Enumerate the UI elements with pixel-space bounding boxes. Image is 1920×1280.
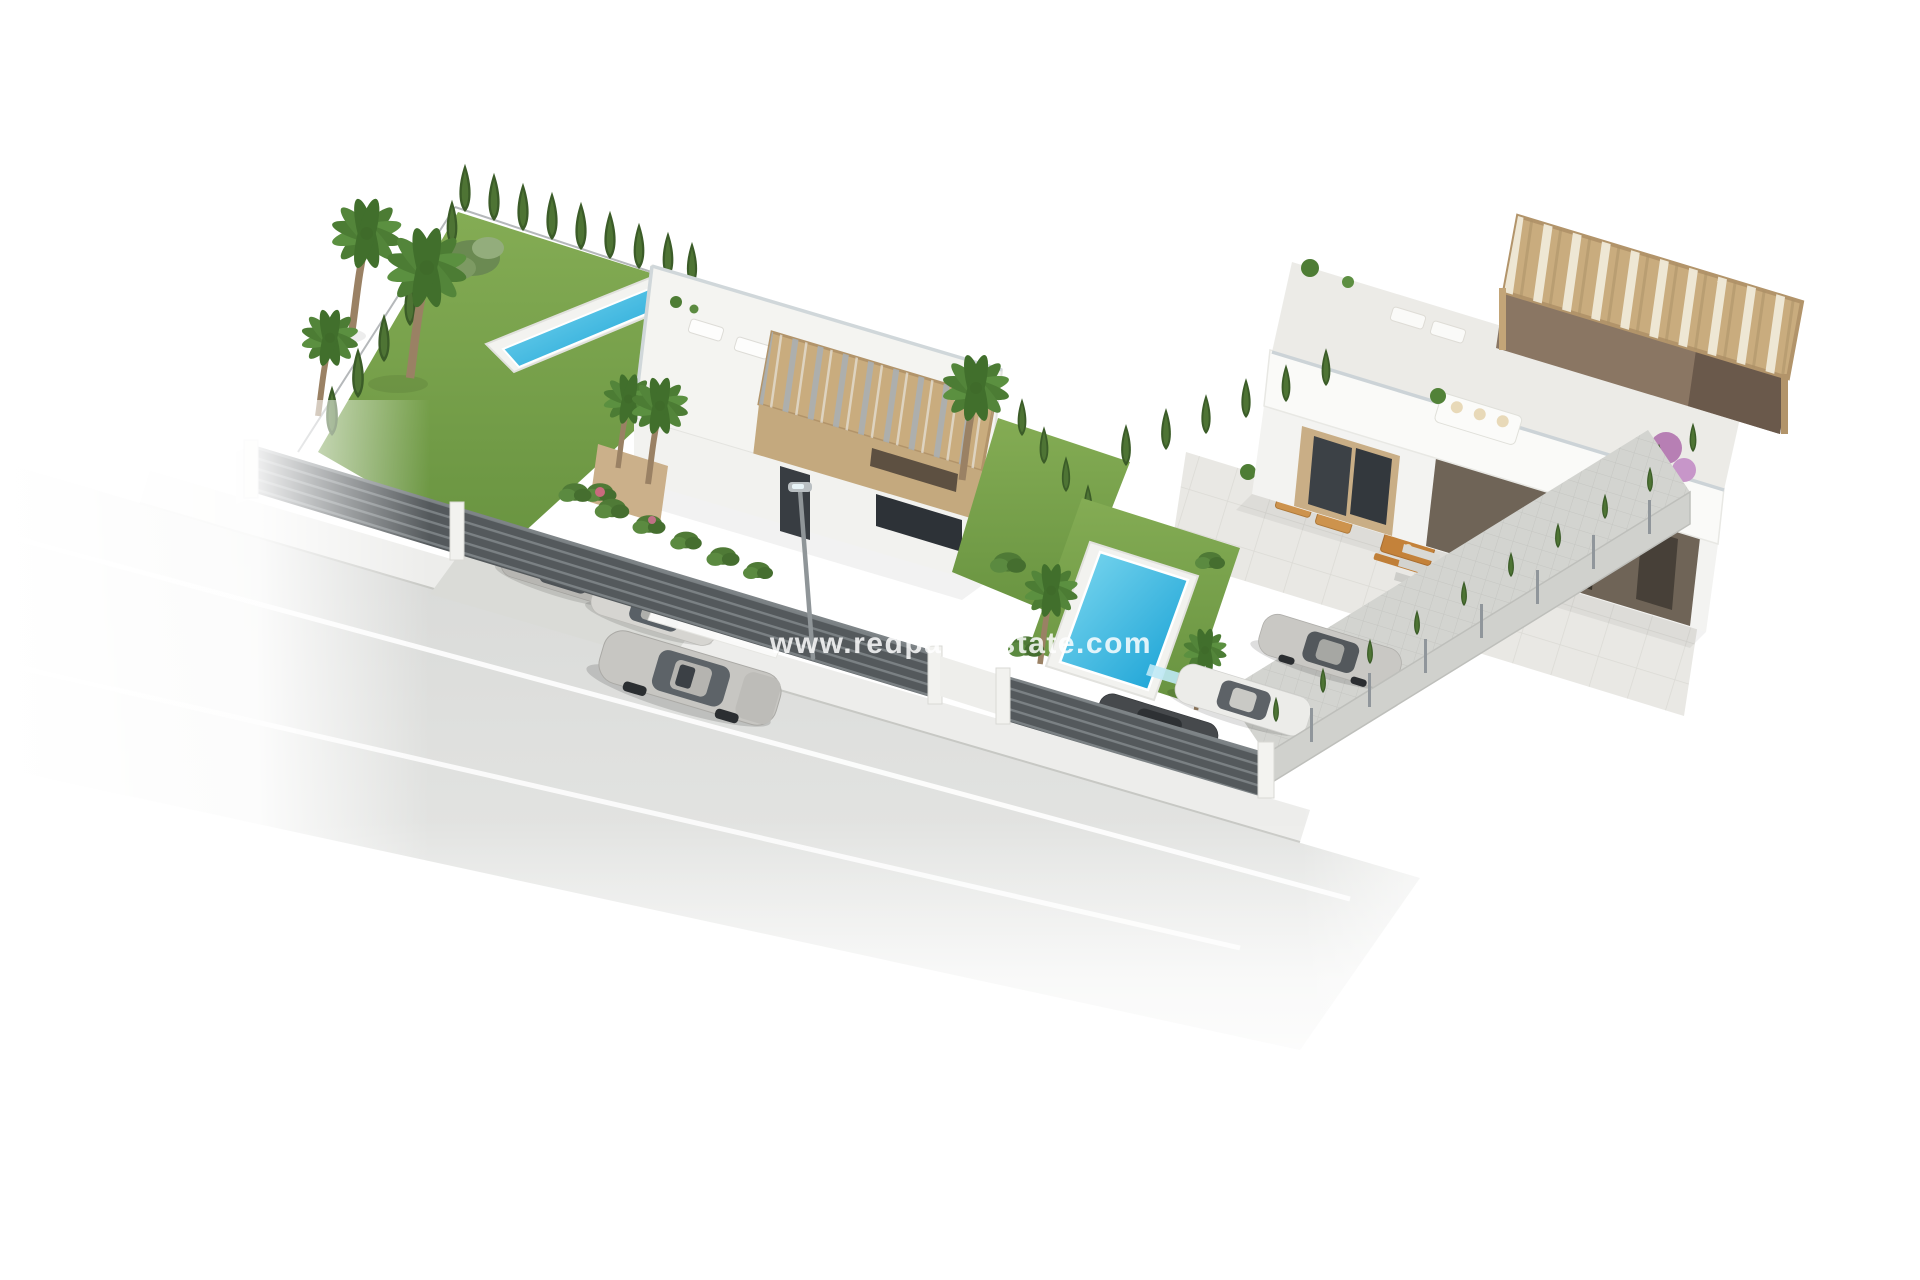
flower-bush-pink xyxy=(595,487,605,497)
render-stage: www.redpalmestate.com xyxy=(0,0,1920,1280)
left-villa-door xyxy=(780,466,810,540)
roof-plant xyxy=(1301,259,1319,277)
roof-plant xyxy=(1342,276,1354,288)
fence-pillar xyxy=(450,502,464,560)
fence-pillar xyxy=(996,668,1010,724)
pergola-post xyxy=(1499,288,1506,350)
watermark-text: www.redpalmestate.com xyxy=(769,627,1152,660)
pergola-post xyxy=(1781,374,1788,434)
terrace-plant xyxy=(1240,464,1256,480)
right-villa-glass-door xyxy=(1308,436,1352,516)
fence-pillar xyxy=(1258,742,1274,798)
roof-plant xyxy=(1430,388,1446,404)
right-villa-plot xyxy=(1008,216,1802,786)
estate-render-svg: www.redpalmestate.com xyxy=(0,0,1920,1280)
flower-bush-pink xyxy=(648,516,656,524)
right-villa-glass-door xyxy=(1350,448,1392,525)
